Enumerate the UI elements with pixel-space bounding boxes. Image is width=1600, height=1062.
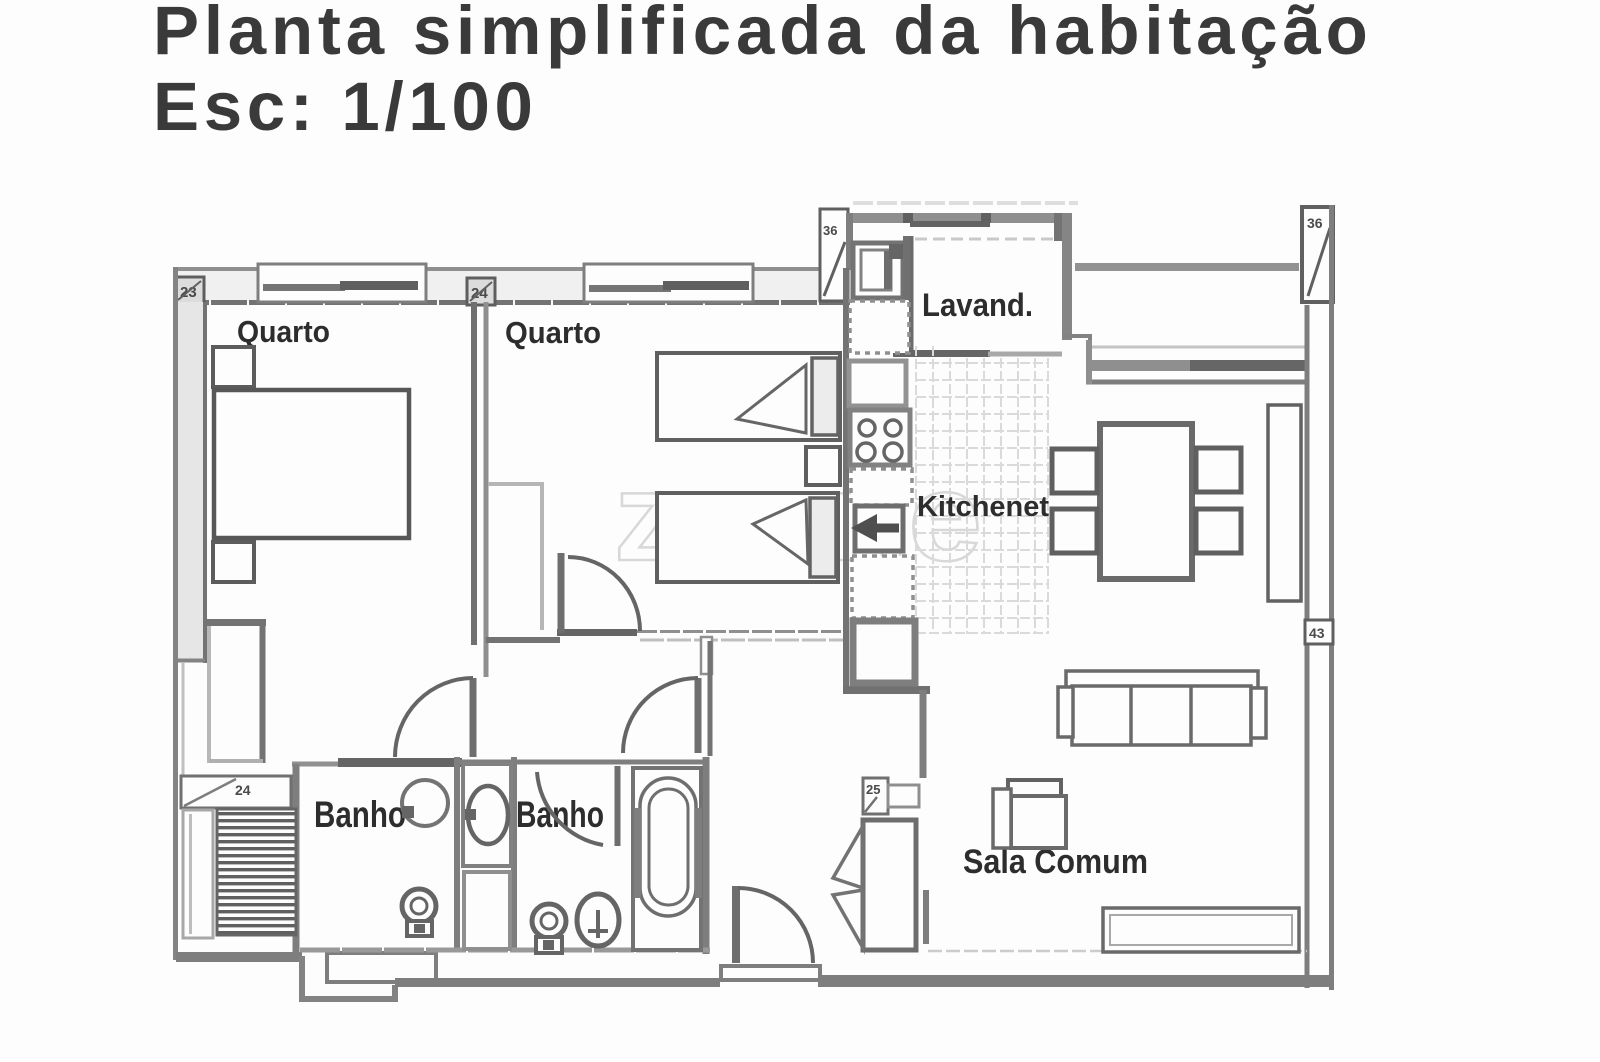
svg-text:Esc: 1/100: Esc: 1/100 xyxy=(153,68,538,145)
svg-text:25: 25 xyxy=(866,782,880,797)
svg-text:Planta simplificada da habitaç: Planta simplificada da habitação xyxy=(153,0,1373,69)
svg-text:Quarto: Quarto xyxy=(237,315,330,349)
svg-text:43: 43 xyxy=(1309,625,1325,641)
svg-text:Quarto: Quarto xyxy=(505,316,601,350)
svg-text:Banho: Banho xyxy=(314,794,406,835)
svg-text:36: 36 xyxy=(823,223,837,238)
svg-text:Kitchenet: Kitchenet xyxy=(917,491,1049,523)
svg-text:Banho: Banho xyxy=(516,794,604,835)
svg-text:36: 36 xyxy=(1307,215,1323,231)
svg-text:24: 24 xyxy=(235,782,251,798)
svg-text:Lavand.: Lavand. xyxy=(922,287,1033,323)
